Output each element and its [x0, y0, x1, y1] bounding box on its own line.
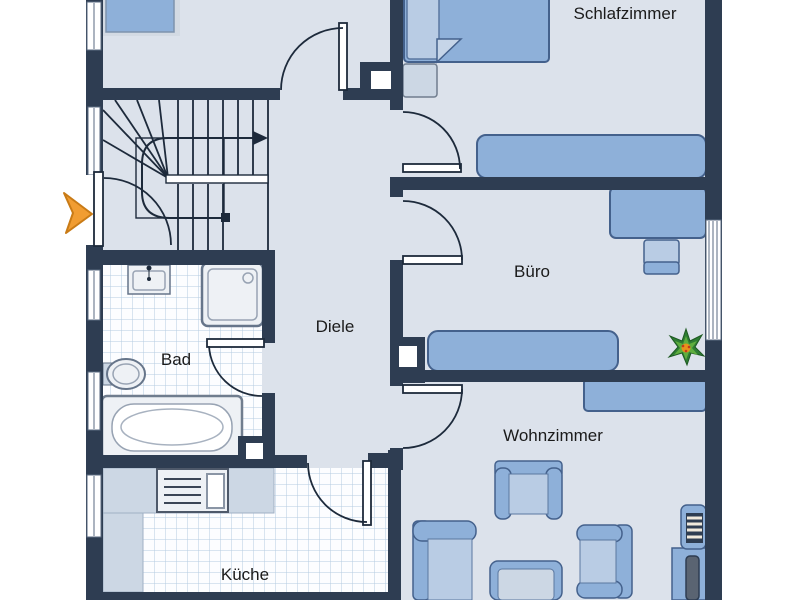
- bathtub: [102, 396, 242, 459]
- nightstand: [403, 64, 437, 97]
- floorplan-svg: Schlafzimmer Büro Diele Bad Wohnzimmer K…: [0, 0, 800, 600]
- sideboard: [584, 379, 706, 411]
- room-label-bad: Bad: [161, 350, 191, 369]
- bed: [404, 0, 549, 62]
- shower: [202, 263, 263, 326]
- bedroom-couch: [477, 135, 706, 178]
- coffee-table: [490, 561, 562, 600]
- chimney-shaft-top: [371, 71, 391, 89]
- chimney-shaft-bottom: [246, 443, 263, 459]
- toilet: [103, 359, 145, 389]
- sink: [128, 265, 170, 294]
- chimney-shaft-middle: [399, 346, 417, 367]
- sofa: [413, 521, 476, 600]
- table-top-room: [100, 0, 180, 36]
- desk-chair: [644, 240, 679, 274]
- stove: [157, 469, 228, 512]
- room-label-schlafzimmer: Schlafzimmer: [574, 4, 677, 23]
- room-label-diele: Diele: [316, 317, 355, 336]
- desk: [610, 187, 706, 238]
- armchair-right: [577, 525, 632, 598]
- room-label-buero: Büro: [514, 262, 550, 281]
- armchair-top: [495, 461, 562, 519]
- room-label-kueche: Küche: [221, 565, 269, 584]
- room-label-wohnzimmer: Wohnzimmer: [503, 426, 603, 445]
- shelf-unit: [681, 505, 706, 549]
- office-couch: [428, 331, 618, 371]
- tv-board: [672, 548, 706, 600]
- floorplan-canvas: Schlafzimmer Büro Diele Bad Wohnzimmer K…: [0, 0, 800, 600]
- tv-icon: [686, 556, 699, 600]
